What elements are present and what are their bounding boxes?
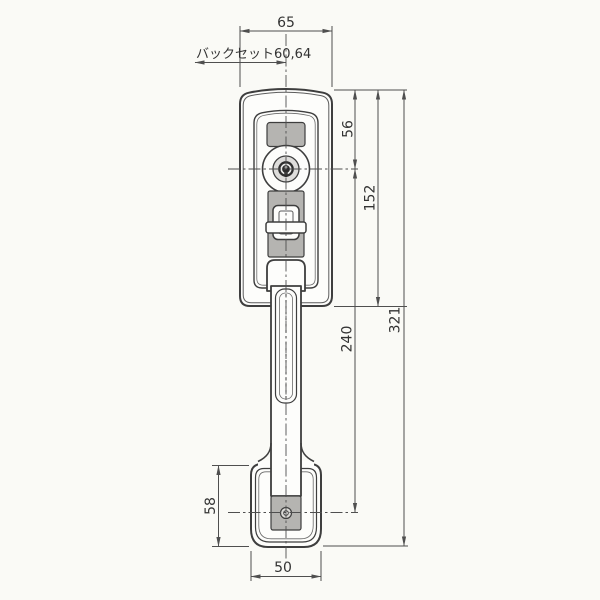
dim-bottom-plate-height: 58 (203, 497, 219, 515)
dim-plate-height: 152 (363, 185, 379, 212)
dim-cylinder-center: 56 (341, 120, 357, 138)
technical-drawing-page: 65 バックセット60,64 56 152 240 321 58 50 (0, 0, 600, 600)
dim-overall-height: 321 (388, 307, 404, 334)
dim-handle-center-span: 240 (340, 326, 356, 353)
handle-collar-left-wing (258, 443, 271, 462)
dim-top-width: 65 (277, 15, 295, 31)
door-handle-dimension-drawing: 65 バックセット60,64 56 152 240 321 58 50 (0, 0, 600, 600)
handle-collar-right-wing (301, 443, 314, 462)
dim-bottom-plate-width: 50 (274, 560, 292, 576)
backset-label: バックセット60,64 (196, 47, 311, 62)
